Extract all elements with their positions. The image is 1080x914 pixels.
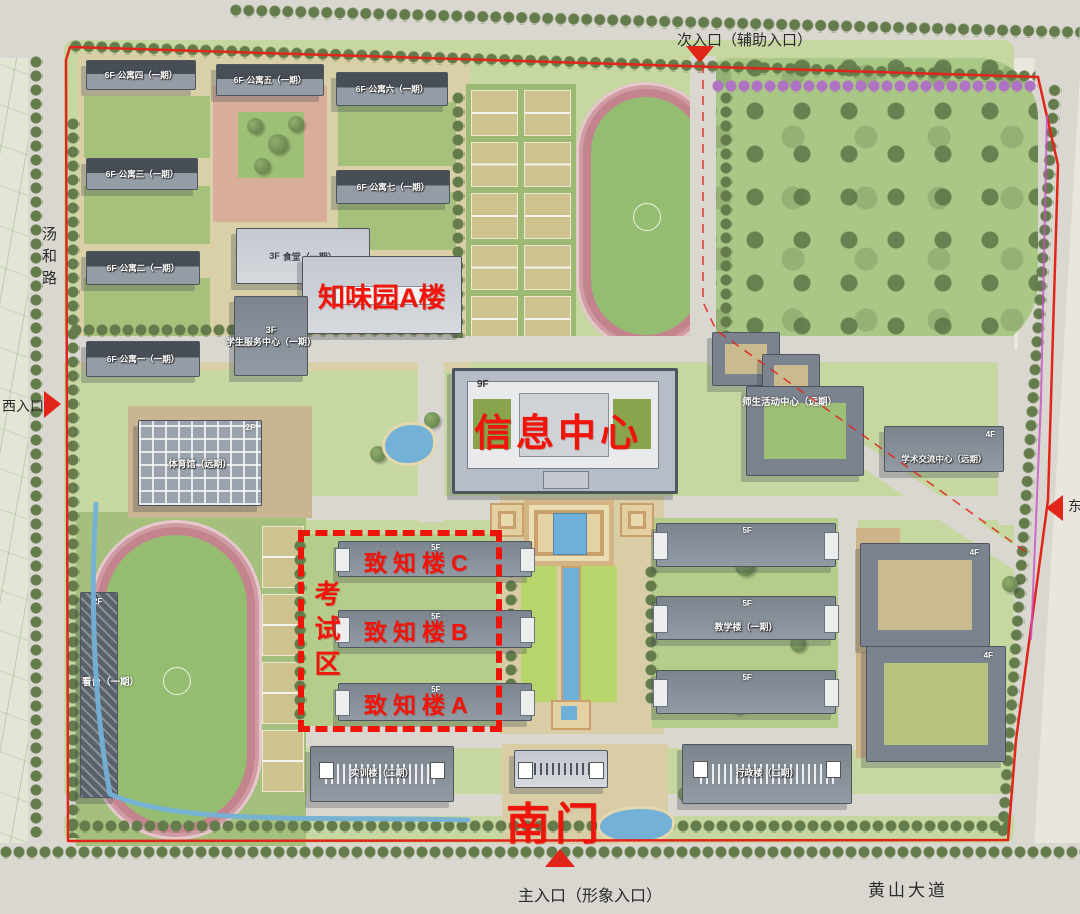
building-label: 体育馆（远期） (139, 421, 261, 505)
court (471, 142, 518, 188)
floors: 5F (742, 599, 751, 608)
building-label: 公寓六（一期） (369, 83, 429, 95)
floors: 6F (107, 263, 117, 273)
building-teaching-2: 5F 教学楼（一期） (656, 596, 836, 640)
court (524, 245, 571, 291)
north-entrance-label: 次入口（辅助入口） (677, 29, 812, 50)
end-tower (520, 548, 535, 572)
building-label: 行政楼（二期） (683, 743, 851, 801)
building-dorm-6: 6F公寓六（一期） (336, 72, 448, 106)
tree-icon (1002, 576, 1018, 592)
tree-col-icon (30, 56, 43, 840)
building-label: 学生服务中心（一期） (226, 337, 316, 347)
court (524, 90, 571, 136)
end-tower (653, 679, 668, 708)
floors: 5F (742, 673, 751, 682)
building-label: 公寓五（一期） (247, 74, 307, 86)
cadastral-area (0, 0, 30, 914)
zhiweiyuan-label: 知味园A楼 (318, 276, 446, 315)
floors: 4F (986, 430, 995, 439)
courtyard (725, 344, 767, 374)
building-label: 实训楼（二期） (311, 745, 453, 799)
gate-post (589, 762, 604, 779)
floors: 4F (984, 651, 993, 660)
campus-master-plan: 6F公寓四（一期） 6F公寓五（一期） 6F公寓六（一期） 6F公寓三（一期） … (0, 0, 1080, 914)
building-dorm-3: 6F公寓三（一期） (86, 158, 198, 190)
floors: 5F (742, 526, 751, 535)
court (524, 142, 571, 188)
building-dorm-2: 6F公寓二（一期） (86, 251, 200, 285)
floors: 4F (970, 548, 979, 557)
building-training: 实训楼（二期） (310, 746, 454, 802)
building-label: 公寓一（一期） (120, 353, 180, 365)
tree-icon (288, 116, 304, 132)
end-tower (824, 679, 839, 708)
road-horizontal-mid (64, 336, 1014, 362)
axis-end-pool (551, 700, 591, 730)
south-road-label: 黄山大道 (868, 876, 948, 901)
court (471, 193, 518, 239)
pool-water (561, 706, 577, 720)
building-student-service: 3F 学生服务中心（一期） (234, 296, 308, 376)
road-north-entrance (690, 56, 716, 344)
tree-icon (254, 158, 270, 174)
building-label: 公寓七（一期） (370, 181, 430, 193)
west-road-label: 汤和路 (38, 226, 59, 292)
court (471, 245, 518, 291)
lawn (84, 186, 210, 244)
end-tower (520, 617, 535, 642)
tree-icon (247, 118, 263, 134)
center-circle (633, 203, 661, 231)
floors: 3F (266, 325, 277, 335)
floors: 3F (269, 251, 280, 261)
building-dorm-4: 6F公寓四（一期） (86, 60, 196, 90)
water-channel (561, 566, 581, 706)
floors: 6F (357, 182, 367, 192)
court (471, 90, 518, 136)
fountain-pool (553, 513, 587, 555)
tree-col-icon (67, 118, 80, 838)
lawn (338, 102, 456, 166)
plaza-motif (620, 503, 654, 537)
end-tower (653, 532, 668, 561)
football-field (591, 97, 701, 335)
east-entrance-label: 东入口 (1068, 496, 1080, 516)
floors: 6F (107, 354, 117, 364)
south-entrance-label: 主入口（形象入口） (518, 882, 662, 906)
exam-zone-label: 考试区 (308, 580, 345, 685)
court (262, 730, 304, 792)
south-gate-structure (514, 750, 608, 788)
gate-post (518, 762, 533, 779)
tree-col-icon (720, 92, 733, 332)
floors: 6F (106, 169, 116, 179)
activity-center-label: 师生活动中心（远期） (742, 394, 837, 408)
floors: 6F (234, 75, 244, 85)
building-teaching-1: 5F (656, 523, 836, 567)
end-tower (824, 532, 839, 561)
zhizhi-c-label: 致知楼C (364, 544, 474, 578)
building-academic-center: 4F 学术交流中心（远期） (884, 426, 1004, 472)
floors: 9F (477, 379, 489, 390)
tree-row-icon (712, 80, 1038, 93)
axis-lawn (581, 566, 617, 702)
court (524, 193, 571, 239)
building-startup-garden: 4F 创业园地 (860, 543, 990, 647)
building-gym: 2F 体育馆（远期） (138, 420, 262, 506)
building-label: 公寓三（一期） (119, 168, 179, 180)
grandstand-label: 看台（一期） (82, 674, 139, 688)
building-admin: 行政楼（二期） (682, 744, 852, 804)
forest-area (698, 58, 1038, 352)
building-lab: 4F 实验楼（二期） (866, 646, 1006, 762)
floors: 6F (105, 70, 115, 80)
building-dorm-7: 6F公寓七（一期） (336, 170, 450, 204)
south-gate-label: 南门 (506, 788, 604, 852)
lawn (84, 96, 210, 158)
building-dorm-1: 6F公寓一（一期） (86, 341, 200, 377)
gate-canopy (528, 763, 594, 776)
end-tower (520, 690, 535, 715)
tree-icon (268, 134, 288, 154)
zhizhi-b-label: 致知楼B (364, 613, 474, 647)
courtyard (878, 560, 972, 630)
basketball-courts (471, 90, 571, 342)
building-dorm-5: 6F公寓五（一期） (216, 64, 324, 96)
building-teaching-3: 5F (656, 670, 836, 714)
building-label: 公寓四（一期） (118, 69, 178, 81)
entrance-steps (543, 471, 589, 489)
info-center-label: 信息中心 (474, 402, 642, 457)
zhizhi-a-label: 致知楼A (364, 686, 474, 720)
pond (382, 422, 436, 466)
end-tower (824, 605, 839, 634)
floors: 6F (356, 84, 366, 94)
west-entrance-label: 西入口 (2, 396, 44, 416)
floors: 2F (246, 423, 255, 432)
courtyard (884, 663, 988, 745)
courtyard (764, 403, 846, 459)
gate-pond (597, 806, 675, 844)
center-circle (163, 667, 191, 695)
building-label: 公寓二（一期） (120, 262, 180, 274)
end-tower (653, 605, 668, 634)
fountain (524, 500, 614, 566)
floors: 2F (93, 597, 102, 606)
building-grandstand: 2F (80, 592, 118, 798)
